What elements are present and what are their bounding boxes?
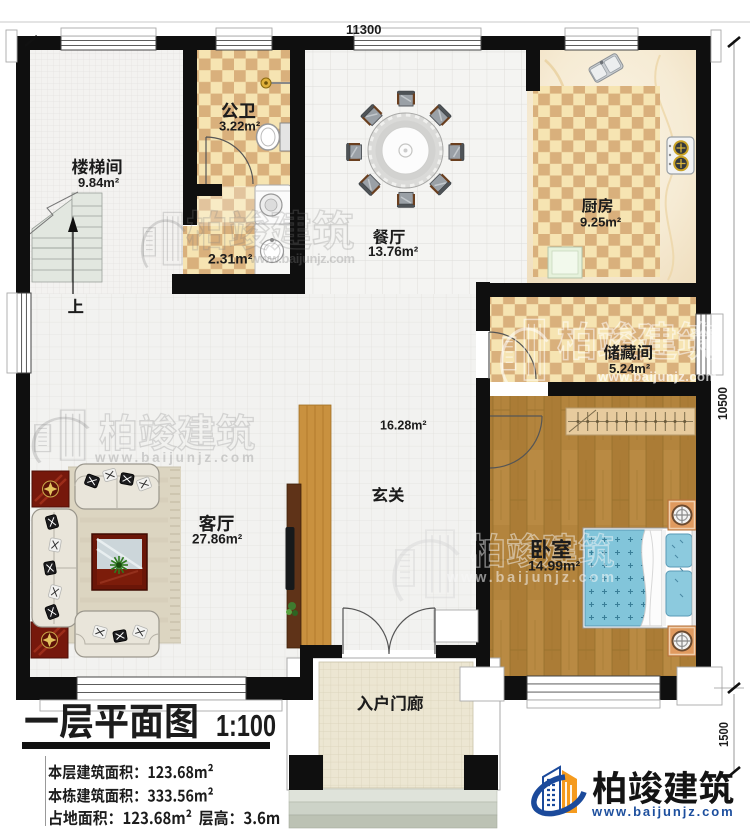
svg-text:16.28m²: 16.28m²	[380, 419, 427, 433]
svg-text:www.baijunjz.com: www.baijunjz.com	[591, 804, 735, 819]
svg-text:5.24m²: 5.24m²	[609, 361, 651, 376]
svg-text:9.84m²: 9.84m²	[78, 175, 120, 190]
svg-text:11300: 11300	[346, 22, 381, 37]
svg-text:13.76m²: 13.76m²	[368, 244, 419, 259]
svg-text:9.25m²: 9.25m²	[580, 215, 622, 230]
svg-text:3.22m²: 3.22m²	[219, 119, 261, 134]
svg-text:14.99m²: 14.99m²	[528, 558, 580, 574]
svg-text:2.31m²: 2.31m²	[208, 251, 253, 267]
svg-text:10500: 10500	[716, 387, 730, 420]
svg-text:1:100: 1:100	[216, 708, 276, 743]
svg-text:www.baijunjz.com: www.baijunjz.com	[249, 251, 356, 266]
svg-text:1500: 1500	[717, 722, 731, 747]
svg-text:27.86m²: 27.86m²	[192, 532, 243, 547]
